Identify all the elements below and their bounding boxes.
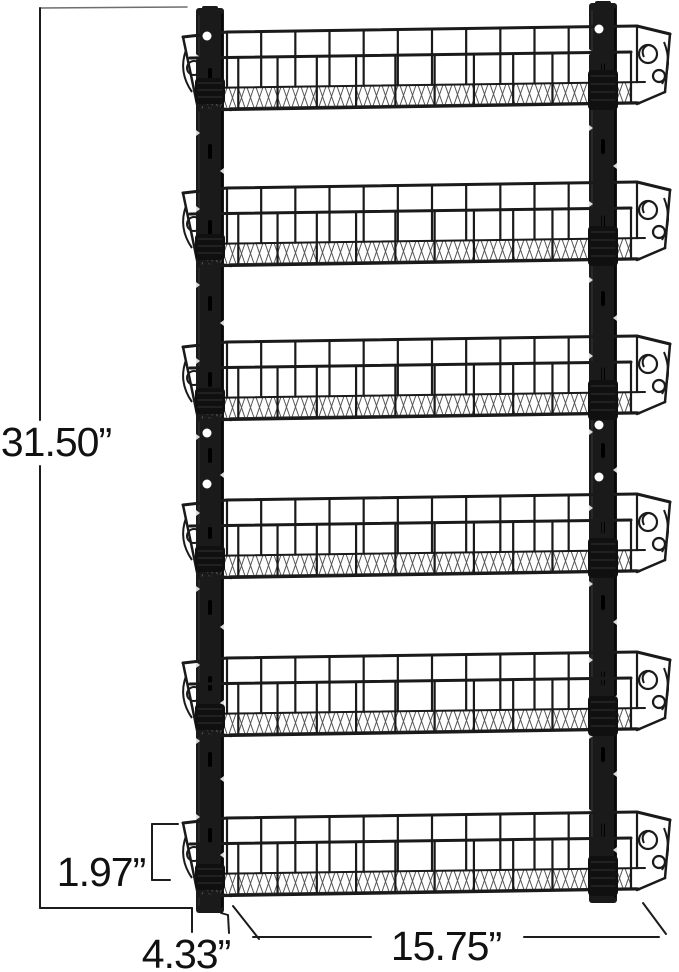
dimension-label-side-depth: 4.33” xyxy=(126,932,246,972)
product-illustration xyxy=(0,0,679,972)
dimension-label-basket-height: 1.97” xyxy=(41,850,161,895)
dimension-label-overall-height: 31.50” xyxy=(0,420,116,465)
product-dimension-diagram: 31.50” 1.97” 4.33” 15.75” xyxy=(0,0,679,972)
dimension-label-basket-width: 15.75” xyxy=(375,924,517,969)
